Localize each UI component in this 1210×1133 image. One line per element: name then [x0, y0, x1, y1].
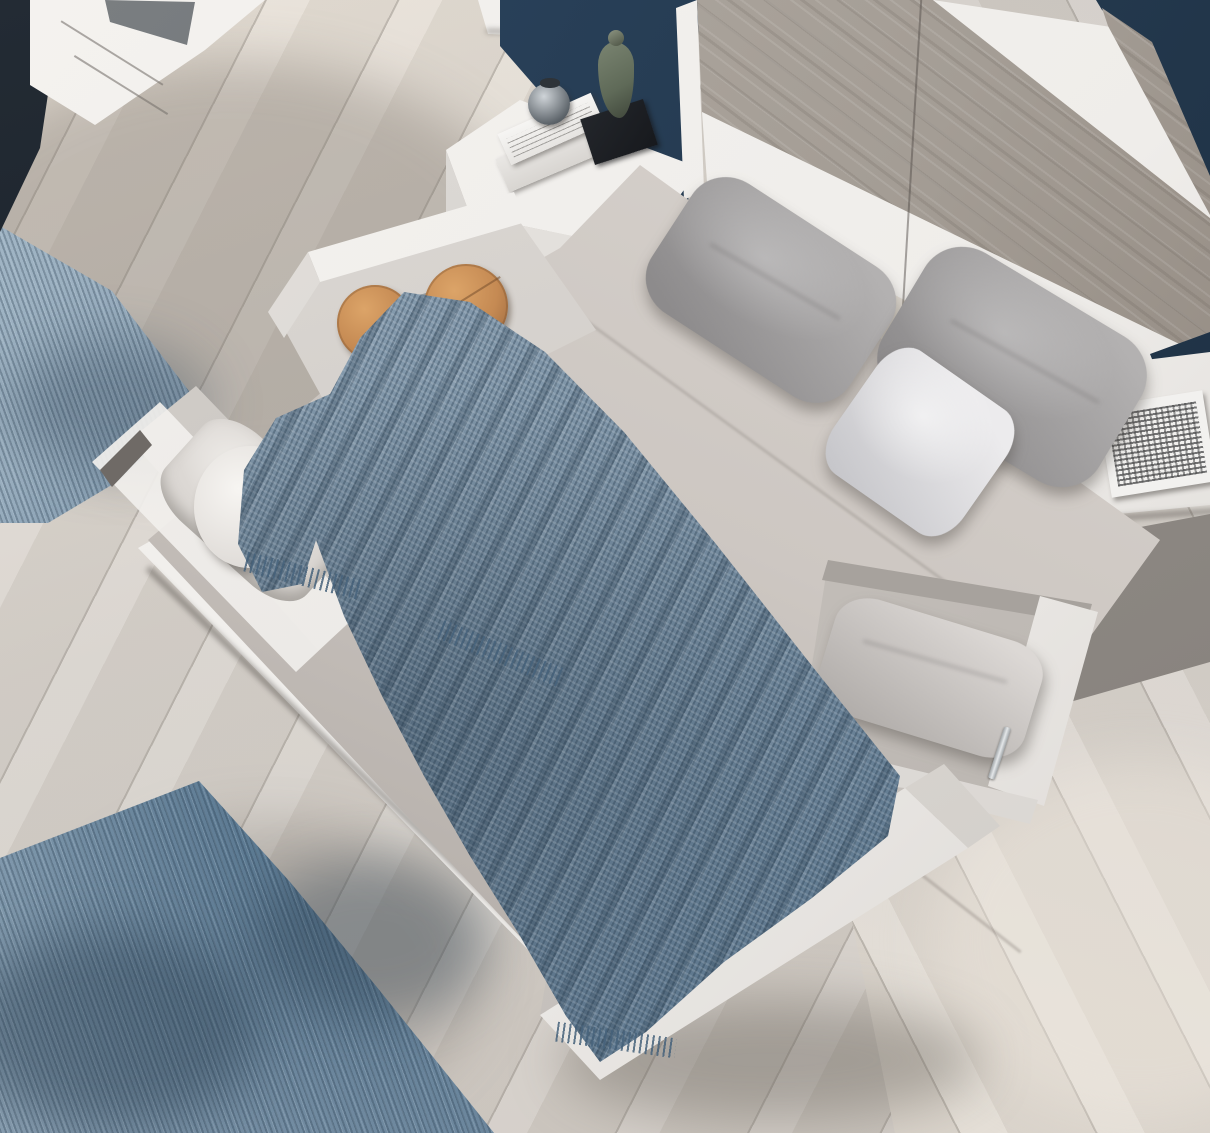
- figurine-head: [608, 30, 624, 46]
- glass-jar-lid: [540, 78, 560, 88]
- bedroom-photo: [0, 0, 1210, 1133]
- glass-jar: [528, 83, 570, 125]
- rug-shadow-2: [250, 860, 490, 1020]
